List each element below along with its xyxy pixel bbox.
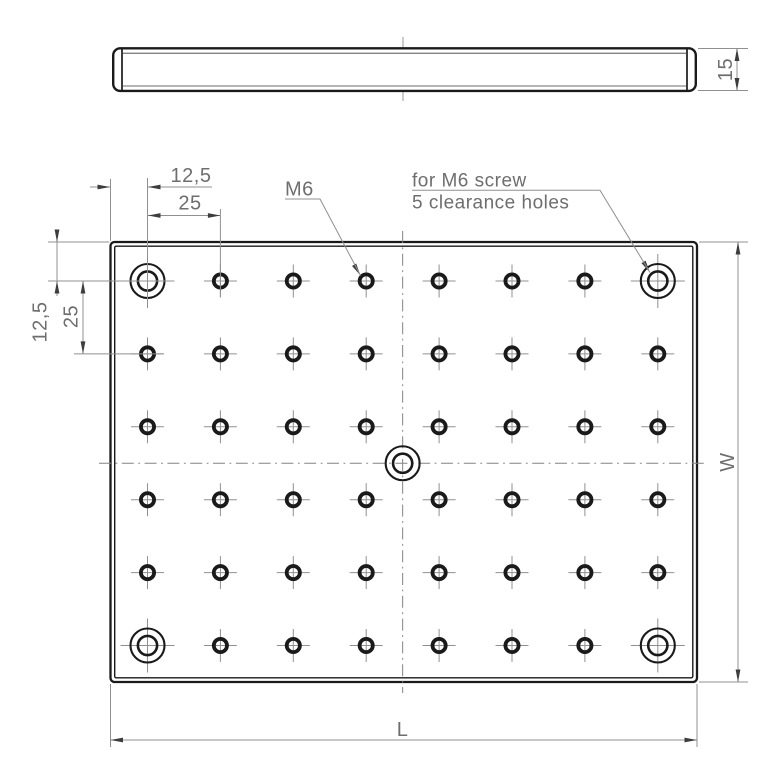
- clearance-note-line2: 5 clearance holes: [412, 193, 569, 214]
- dimension-arrowhead: [98, 185, 111, 190]
- dimension-arrowhead: [685, 738, 698, 743]
- dim-label-margin-left: 12,5: [30, 302, 52, 343]
- side-view-outline: [113, 48, 696, 91]
- thread-label: M6: [285, 179, 314, 201]
- clearance-note-line1: for M6 screw: [412, 171, 527, 192]
- plate-outline: [111, 242, 698, 682]
- width-label: W: [717, 452, 739, 471]
- plan-view: [99, 231, 707, 693]
- technical-drawing: 12,5 25 M6 for M6 screw 5 clearance hole…: [0, 0, 782, 768]
- dimension-arrowhead: [148, 185, 161, 190]
- length-label: L: [397, 719, 409, 741]
- drawing-canvas: 12,5 25 M6 for M6 screw 5 clearance hole…: [0, 0, 782, 768]
- dim-label-margin-top: 12,5: [171, 165, 212, 187]
- dimension-arrowhead: [55, 230, 60, 243]
- dimension-arrowhead: [81, 341, 86, 354]
- dimension-arrowhead: [81, 281, 86, 294]
- dimension-arrowhead: [111, 738, 124, 743]
- thickness-label: 15: [715, 58, 737, 81]
- dimension-arrowhead: [208, 213, 221, 218]
- dimension-arrowhead: [148, 213, 161, 218]
- dimension-arrowhead: [55, 281, 60, 294]
- dimension-arrowhead: [736, 242, 741, 255]
- dim-label-pitch-top: 25: [178, 193, 201, 215]
- dimension-arrowhead: [736, 670, 741, 683]
- side-view: [113, 37, 696, 101]
- dim-label-pitch-left: 25: [61, 305, 83, 328]
